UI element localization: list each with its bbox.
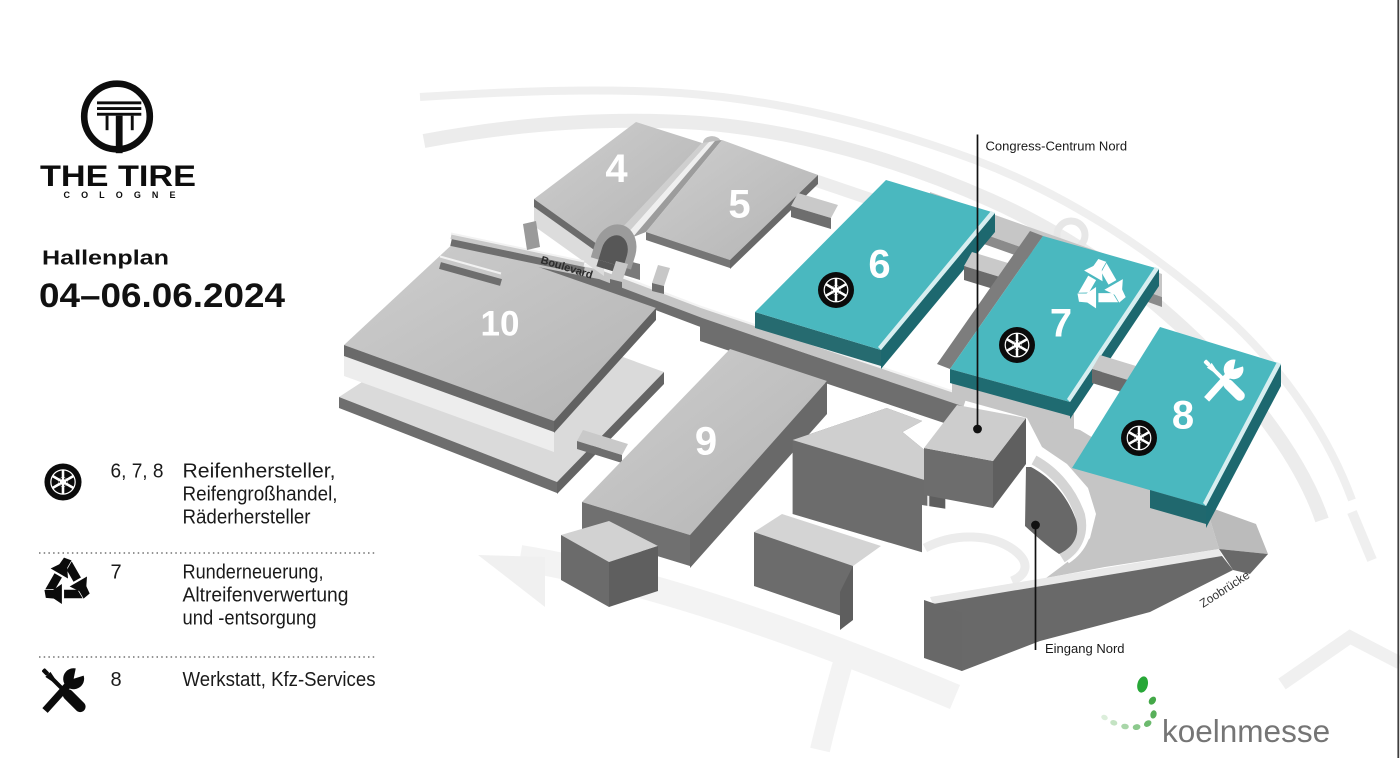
svg-text:8: 8 (111, 669, 122, 691)
svg-text:6: 6 (868, 243, 890, 287)
svg-text:7: 7 (1050, 302, 1072, 346)
svg-text:8: 8 (1172, 394, 1194, 438)
svg-text:10: 10 (481, 305, 520, 344)
svg-text:Räderhersteller: Räderhersteller (183, 507, 311, 529)
svg-text:Runderneuerung,: Runderneuerung, (183, 562, 324, 584)
svg-text:7: 7 (111, 562, 122, 584)
svg-text:04–06.06.2024: 04–06.06.2024 (39, 277, 285, 315)
svg-text:Eingang Nord: Eingang Nord (1045, 641, 1125, 656)
svg-text:6, 7, 8: 6, 7, 8 (111, 461, 164, 483)
svg-text:koelnmesse: koelnmesse (1162, 713, 1330, 749)
svg-text:Altreifenverwertung: Altreifenverwertung (183, 585, 349, 607)
svg-text:Reifengroßhandel,: Reifengroßhandel, (183, 484, 338, 506)
svg-text:Reifenhersteller,: Reifenhersteller, (183, 461, 336, 483)
svg-text:4: 4 (605, 147, 628, 191)
svg-text:Congress-Centrum Nord: Congress-Centrum Nord (986, 139, 1128, 154)
svg-text:5: 5 (728, 183, 750, 227)
svg-text:Hallenplan: Hallenplan (42, 247, 169, 270)
svg-text:und -entsorgung: und -entsorgung (183, 608, 317, 630)
svg-text:9: 9 (695, 420, 717, 464)
svg-text:Werkstatt, Kfz-Services: Werkstatt, Kfz-Services (183, 669, 376, 691)
svg-text:THE TIRE: THE TIRE (40, 160, 196, 193)
